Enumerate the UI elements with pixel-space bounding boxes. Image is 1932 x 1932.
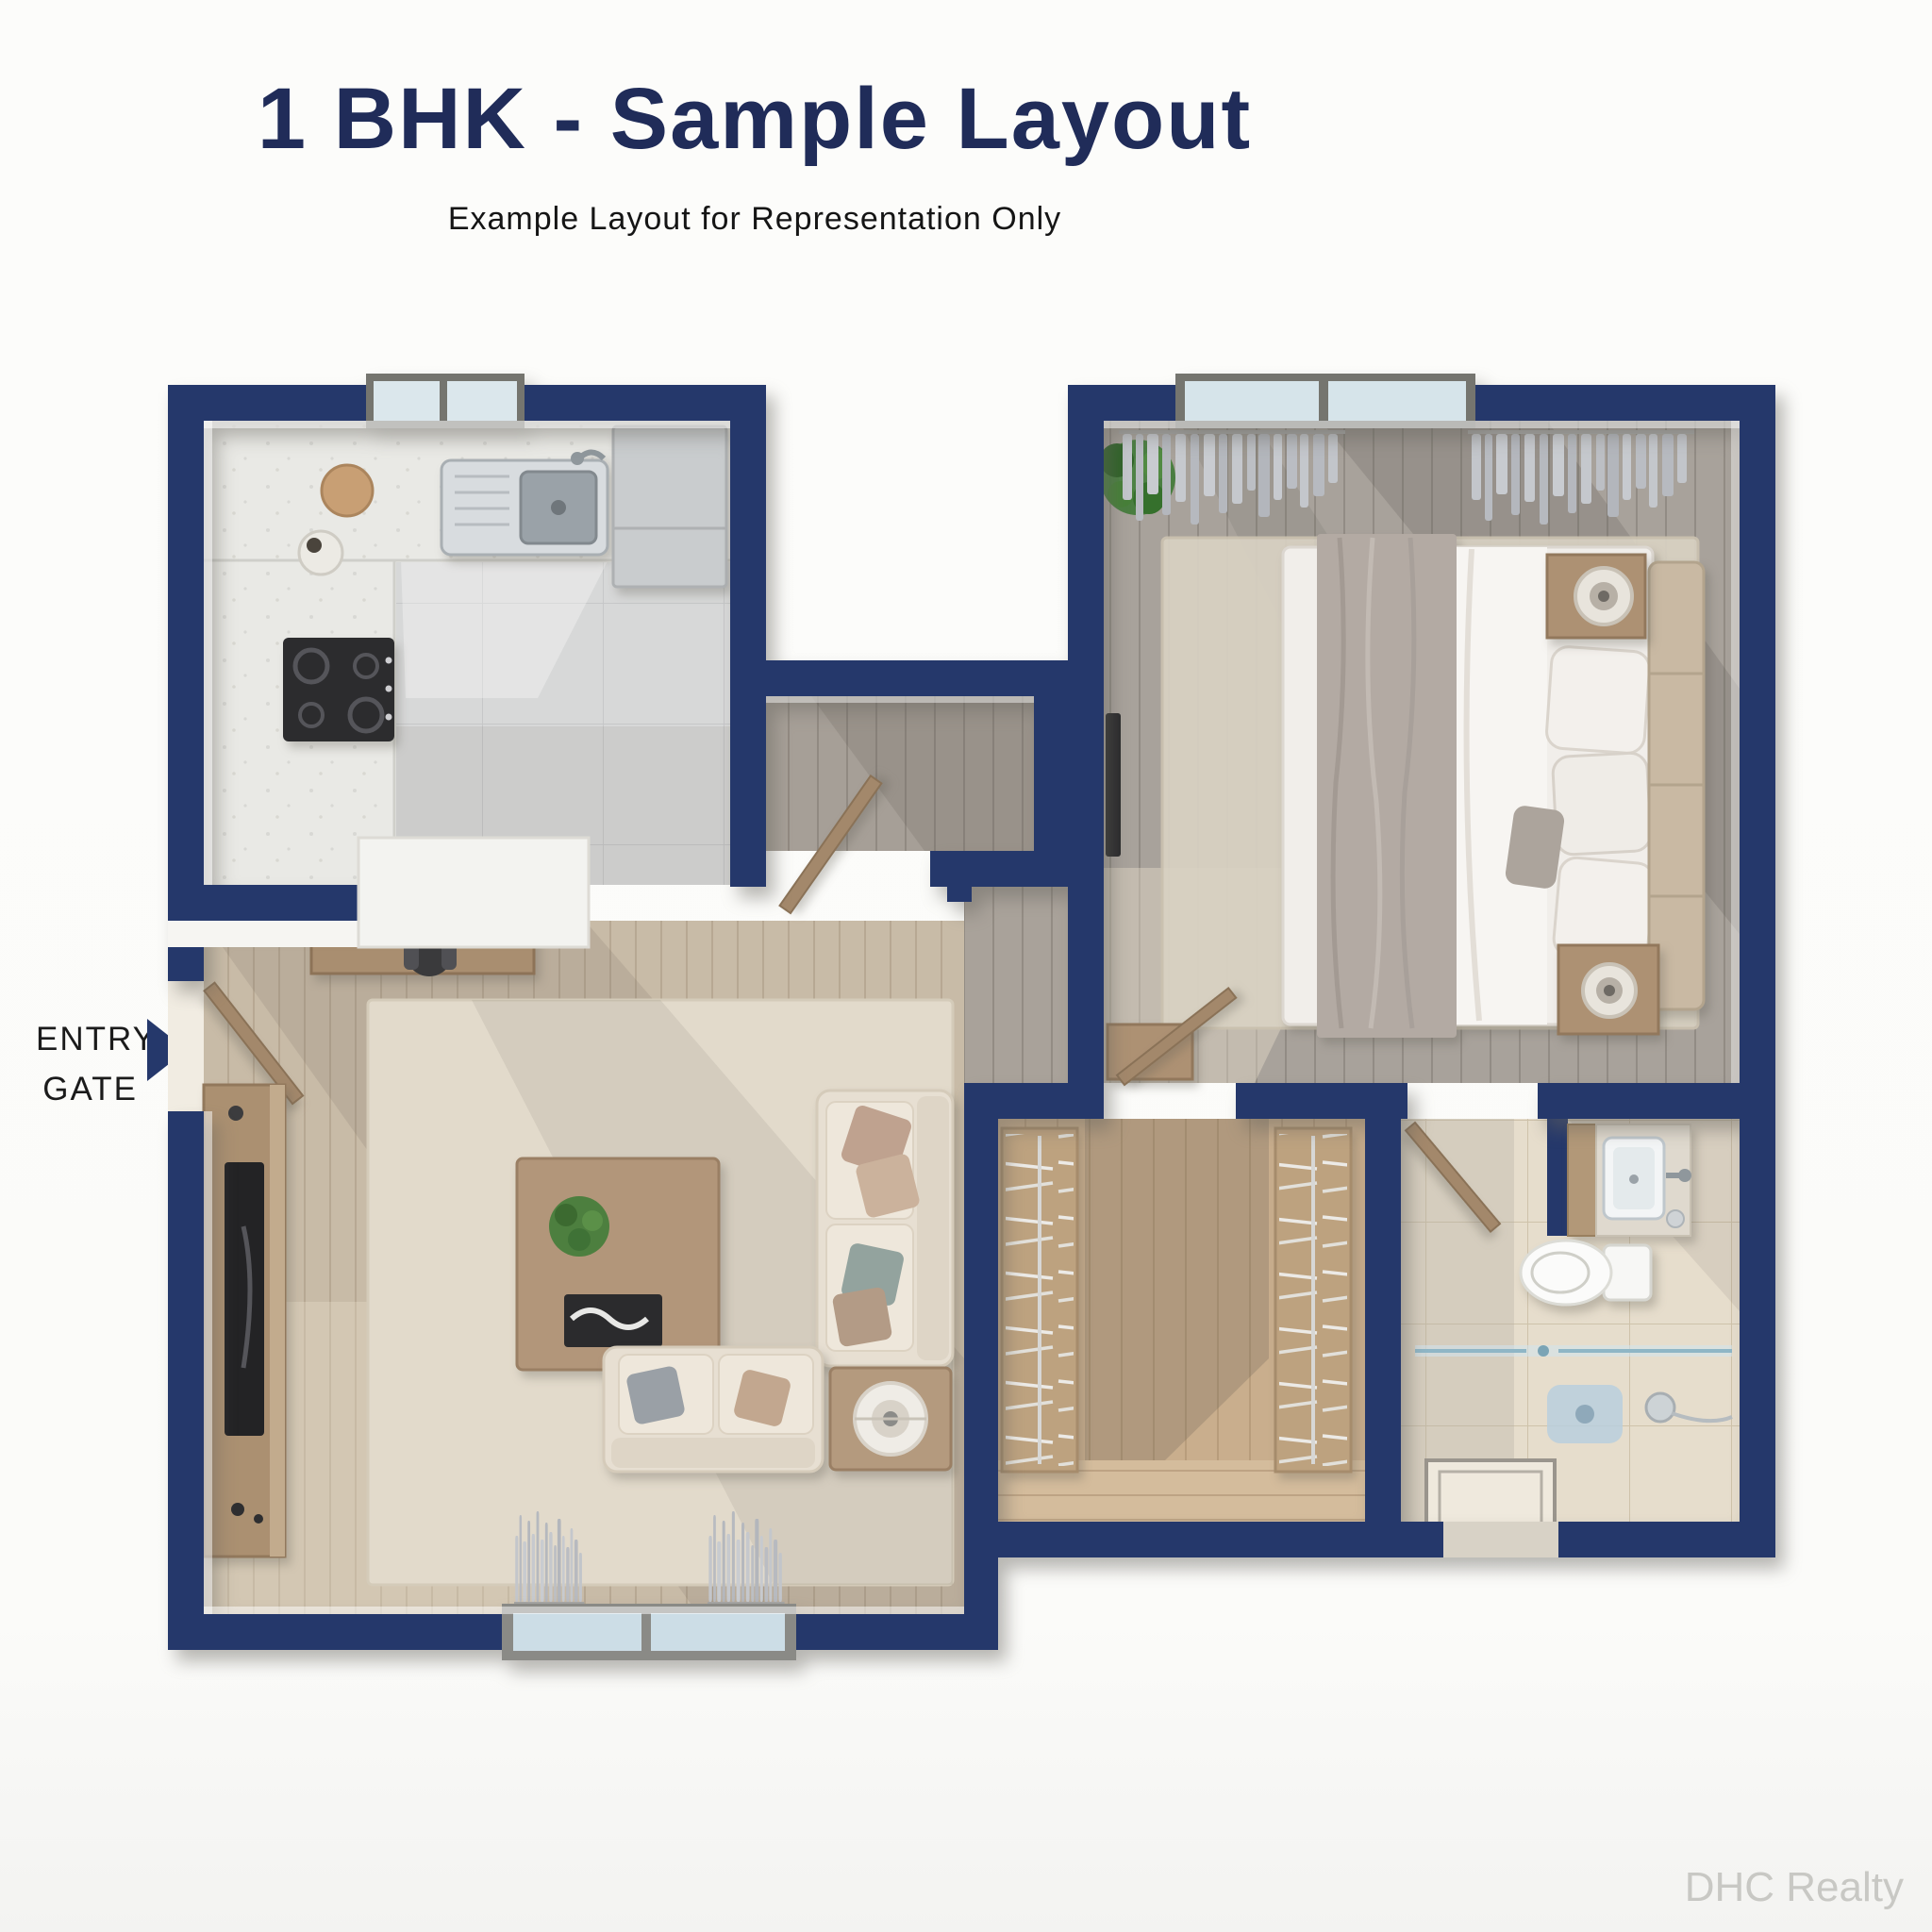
floor-plan [0,0,1932,1932]
kitchen-hob [283,638,394,741]
shower-mat [1547,1385,1623,1443]
bathroom-vanity [1568,1124,1691,1236]
tv-screen [225,1162,264,1436]
sofa-loveseat [604,1347,823,1472]
closet-left [1002,1128,1077,1472]
bed-blanket [1317,534,1457,1038]
nightstand-bottom [1558,945,1658,1034]
side-table-lamp [830,1368,951,1470]
headboard [1649,562,1704,1009]
bedroom-tv [1106,713,1121,857]
closet-right [1275,1128,1351,1472]
entry-threshold [168,981,204,1111]
shower-glass [1415,1345,1732,1357]
bedroom-window [1175,374,1475,428]
nightstand-top [1547,555,1645,638]
coffee-table [517,1158,719,1370]
watermark: DHC Realty [1685,1864,1904,1911]
kitchen-window [366,374,525,428]
kitchen-sink [441,452,608,555]
bath-partition-wall [1547,1119,1568,1236]
toilet [1521,1241,1651,1305]
sofa-chaise [817,1091,953,1366]
fridge [613,426,726,587]
foyer-floor [766,696,1034,851]
